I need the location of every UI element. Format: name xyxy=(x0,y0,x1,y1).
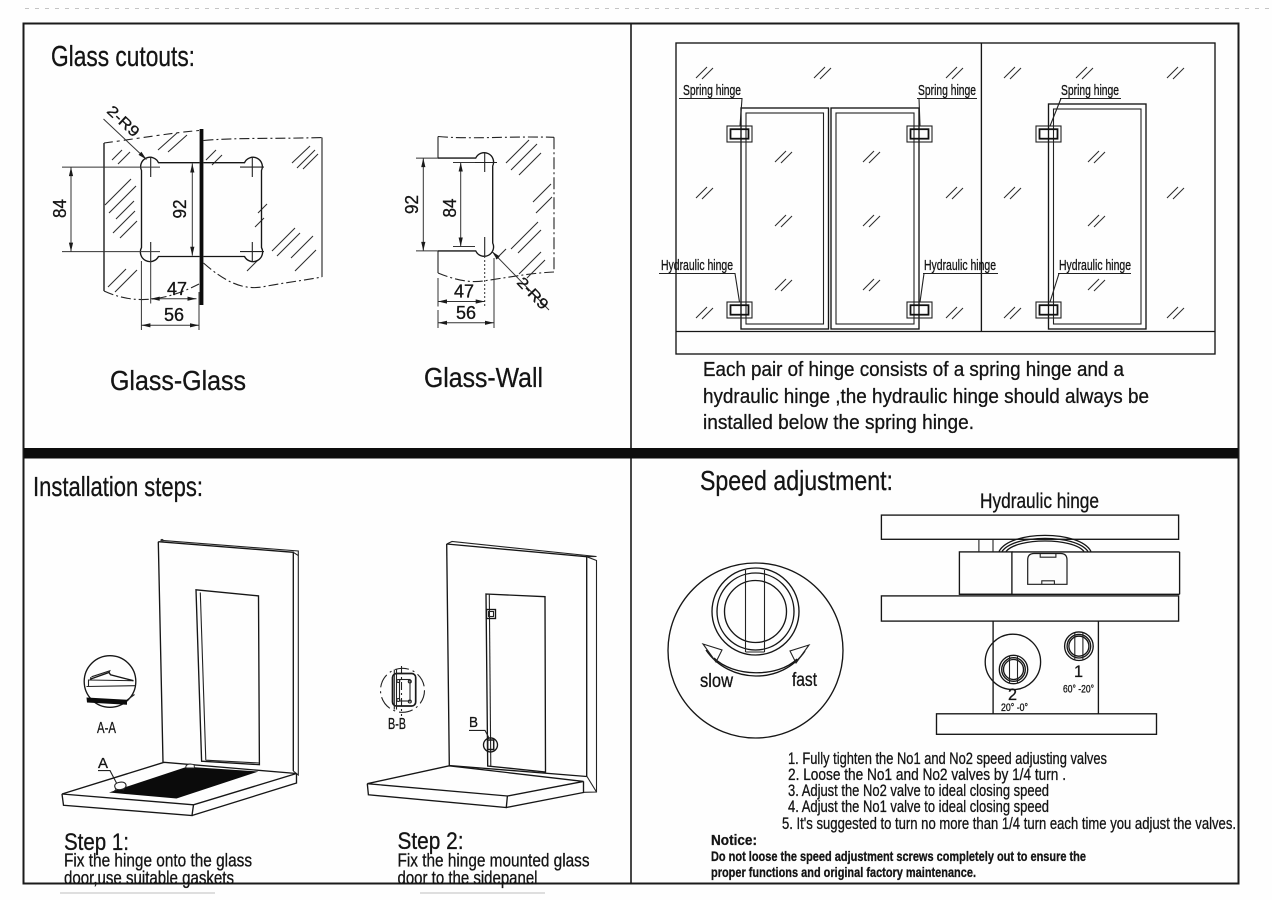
svg-text:slow: slow xyxy=(700,671,733,692)
svg-text:56: 56 xyxy=(164,305,184,325)
svg-text:fast: fast xyxy=(792,670,818,691)
svg-text:A-A: A-A xyxy=(97,720,116,737)
svg-text:47: 47 xyxy=(167,279,187,299)
svg-text:Speed adjustment:: Speed adjustment: xyxy=(700,465,893,496)
svg-text:20° -0°: 20° -0° xyxy=(1001,702,1028,714)
svg-text:Hydraulic hinge: Hydraulic hinge xyxy=(980,490,1099,513)
svg-text:60° -20°: 60° -20° xyxy=(1063,684,1094,696)
svg-text:47: 47 xyxy=(454,282,474,302)
svg-text:Each pair of hinge consists of: Each pair of hinge consists of a spring … xyxy=(703,359,1125,381)
svg-text:hydraulic hinge ,the hydraulic: hydraulic hinge ,the hydraulic hinge sho… xyxy=(703,386,1149,408)
svg-text:Do not loose the speed adjustm: Do not loose the speed adjustment screws… xyxy=(711,848,1086,864)
svg-text:56: 56 xyxy=(456,303,476,323)
svg-text:A: A xyxy=(98,755,108,772)
svg-text:5. It's suggested to turn no m: 5. It's suggested to turn no more than 1… xyxy=(782,814,1236,833)
svg-text:B-B: B-B xyxy=(388,716,406,733)
svg-text:Spring hinge: Spring hinge xyxy=(683,82,741,99)
svg-text:Spring hinge: Spring hinge xyxy=(1061,82,1119,99)
svg-text:proper functions and original: proper functions and original factory ma… xyxy=(711,864,976,880)
svg-text:Glass-Glass: Glass-Glass xyxy=(110,365,246,396)
svg-text:Installation steps:: Installation steps: xyxy=(33,471,203,502)
svg-text:Hydraulic hinge: Hydraulic hinge xyxy=(1059,257,1131,274)
svg-text:door to the sidepanel: door to the sidepanel xyxy=(398,868,538,888)
svg-text:Glass-Wall: Glass-Wall xyxy=(424,362,543,393)
svg-text:Notice:: Notice: xyxy=(711,832,757,849)
svg-text:92: 92 xyxy=(170,200,190,219)
svg-text:door,use suitable gaskets: door,use suitable gaskets xyxy=(64,868,234,888)
svg-text:B: B xyxy=(469,714,478,731)
svg-text:installed below the spring hin: installed below the spring hinge. xyxy=(703,412,974,434)
svg-text:84: 84 xyxy=(440,199,460,218)
svg-text:Spring hinge: Spring hinge xyxy=(918,82,976,99)
svg-text:Hydraulic hinge: Hydraulic hinge xyxy=(661,257,733,274)
svg-text:84: 84 xyxy=(50,199,70,218)
svg-text:1: 1 xyxy=(1074,662,1083,681)
svg-text:Hydraulic hinge: Hydraulic hinge xyxy=(924,257,996,274)
svg-text:Glass cutouts:: Glass cutouts: xyxy=(51,41,195,73)
svg-text:92: 92 xyxy=(402,195,422,214)
